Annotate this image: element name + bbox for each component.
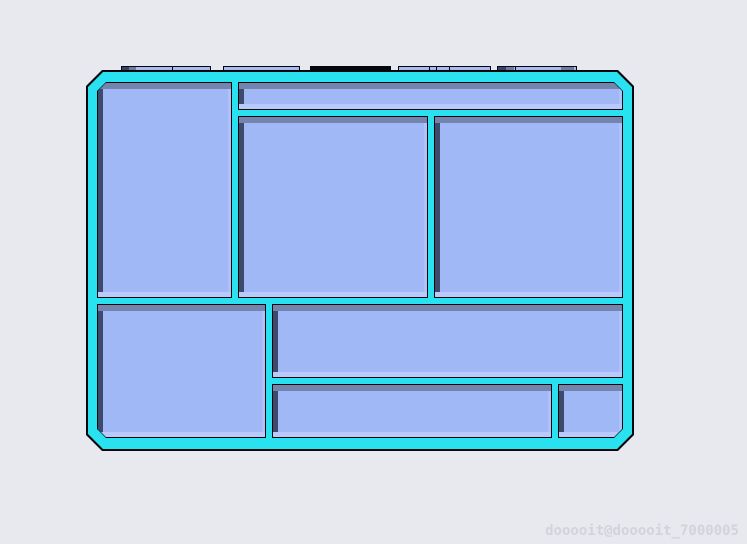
inner-wall-bottom [239,104,622,109]
inner-wall-left [273,385,278,437]
compartment-top-left [97,82,232,298]
inner-wall-right [619,385,622,437]
compartment-floor [273,305,622,377]
inner-wall-left [435,117,440,297]
inner-wall-bottom [98,292,231,297]
inner-wall-top [98,305,265,311]
inner-wall-left [239,117,244,297]
compartment-floor [559,385,622,437]
inner-wall-bottom [435,292,622,297]
inner-wall-bottom [239,292,427,297]
inner-wall-left [98,83,103,297]
compartment-floor [98,83,231,297]
inner-wall-bottom [273,372,622,377]
inner-wall-top [98,83,231,89]
inner-wall-top [239,117,427,123]
inner-wall-top [273,305,622,311]
inner-wall-right [619,305,622,377]
inner-wall-top [239,83,622,89]
inner-wall-top [435,117,622,123]
inner-wall-top [559,385,622,391]
inner-wall-right [228,83,231,297]
inner-wall-right [548,385,551,437]
compartment-bottom-right-small [558,384,623,438]
inner-wall-left [273,305,278,377]
compartment-floor [435,117,622,297]
inner-wall-left [559,385,564,437]
compartment-floor [239,83,622,109]
compartment-floor [239,117,427,297]
inner-wall-top [273,385,551,391]
compartment-mid-wide [272,304,623,378]
compartment-bottom-left [97,304,266,438]
compartment-middle [238,116,428,298]
inner-wall-right [619,117,622,297]
inner-wall-right [262,305,265,437]
inner-wall-bottom [98,432,265,437]
compartment-top-strip [238,82,623,110]
compartment-floor [273,385,551,437]
watermark-text: dooooit@dooooit_7000005 [545,523,739,539]
compartment-bottom-strip [272,384,552,438]
inner-wall-left [98,305,103,437]
compartment-right [434,116,623,298]
inner-wall-bottom [273,432,551,437]
compartment-floor [98,305,265,437]
inner-wall-bottom [559,432,622,437]
model-preview-viewport: dooooit@dooooit_7000005 [0,0,747,544]
inner-wall-right [424,117,427,297]
